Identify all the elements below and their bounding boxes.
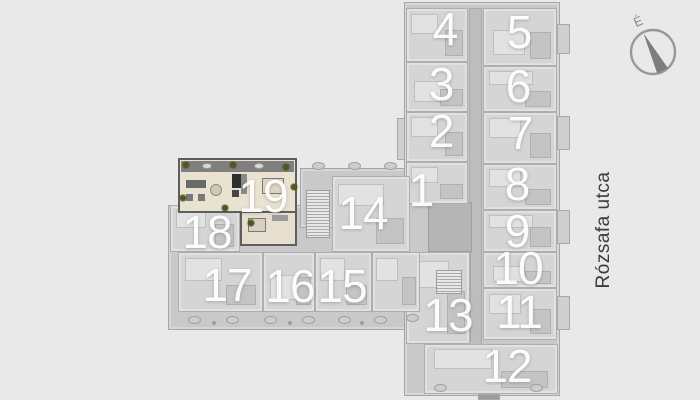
shrub xyxy=(226,316,239,324)
unit-19-label[interactable]: 19 xyxy=(238,173,287,219)
unit-7-label[interactable]: 7 xyxy=(508,110,533,156)
terrace-corner xyxy=(372,252,420,312)
shrub xyxy=(264,316,277,324)
balcony xyxy=(557,116,570,150)
stair-core xyxy=(428,202,472,252)
shrub xyxy=(374,316,387,324)
shrub xyxy=(530,384,543,392)
unit-10-label[interactable]: 10 xyxy=(493,245,542,291)
shrub xyxy=(384,162,397,170)
unit-2-label[interactable]: 2 xyxy=(429,108,454,154)
compass-needle xyxy=(638,31,668,74)
unit-4-label[interactable]: 4 xyxy=(433,6,458,52)
unit-3-label[interactable]: 3 xyxy=(429,61,454,107)
shrub xyxy=(348,162,361,170)
staircase xyxy=(306,190,330,238)
shrub-dot xyxy=(360,321,364,325)
unit-14-label[interactable]: 14 xyxy=(338,190,387,236)
compass-north-label: É xyxy=(631,13,645,30)
compass-icon: É xyxy=(624,12,684,84)
shrub xyxy=(188,316,201,324)
dining-table xyxy=(210,184,222,196)
street-name-label: Rózsafa utca xyxy=(593,172,615,289)
plant-icon xyxy=(183,162,189,168)
unit-6-label[interactable]: 6 xyxy=(506,63,531,109)
unit-15-label[interactable]: 15 xyxy=(317,263,366,309)
unit-16-label[interactable]: 16 xyxy=(265,263,314,309)
unit-11-label[interactable]: 11 xyxy=(496,289,542,335)
shrub-dot xyxy=(288,321,292,325)
balcony xyxy=(557,24,570,54)
terrace-shrub xyxy=(202,163,212,169)
unit-18-label[interactable]: 18 xyxy=(182,209,231,255)
unit-17-label[interactable]: 17 xyxy=(202,262,251,308)
entrance-step xyxy=(478,394,500,400)
armchair xyxy=(198,194,205,201)
unit-12-label[interactable]: 12 xyxy=(482,343,531,389)
shrub xyxy=(338,316,351,324)
shrub xyxy=(312,162,325,170)
unit-5-label[interactable]: 5 xyxy=(507,9,532,55)
balcony xyxy=(557,296,570,330)
plant-icon xyxy=(180,195,186,201)
unit-1-label[interactable]: 1 xyxy=(409,167,434,213)
balcony xyxy=(557,210,570,244)
unit-8-label[interactable]: 8 xyxy=(505,161,530,207)
unit-13-label[interactable]: 13 xyxy=(423,292,472,338)
plant-icon xyxy=(291,184,297,190)
balcony xyxy=(397,118,405,160)
terrace-shrub xyxy=(254,163,264,169)
sofa xyxy=(186,180,206,188)
plant-icon xyxy=(230,162,236,168)
armchair xyxy=(186,194,193,201)
shrub-dot xyxy=(212,321,216,325)
floorplan-stage: 1 2 3 4 5 6 7 8 9 10 11 12 13 14 15 16 1… xyxy=(0,0,700,400)
shrub xyxy=(302,316,315,324)
shrub xyxy=(434,384,447,392)
shrub xyxy=(406,314,419,322)
